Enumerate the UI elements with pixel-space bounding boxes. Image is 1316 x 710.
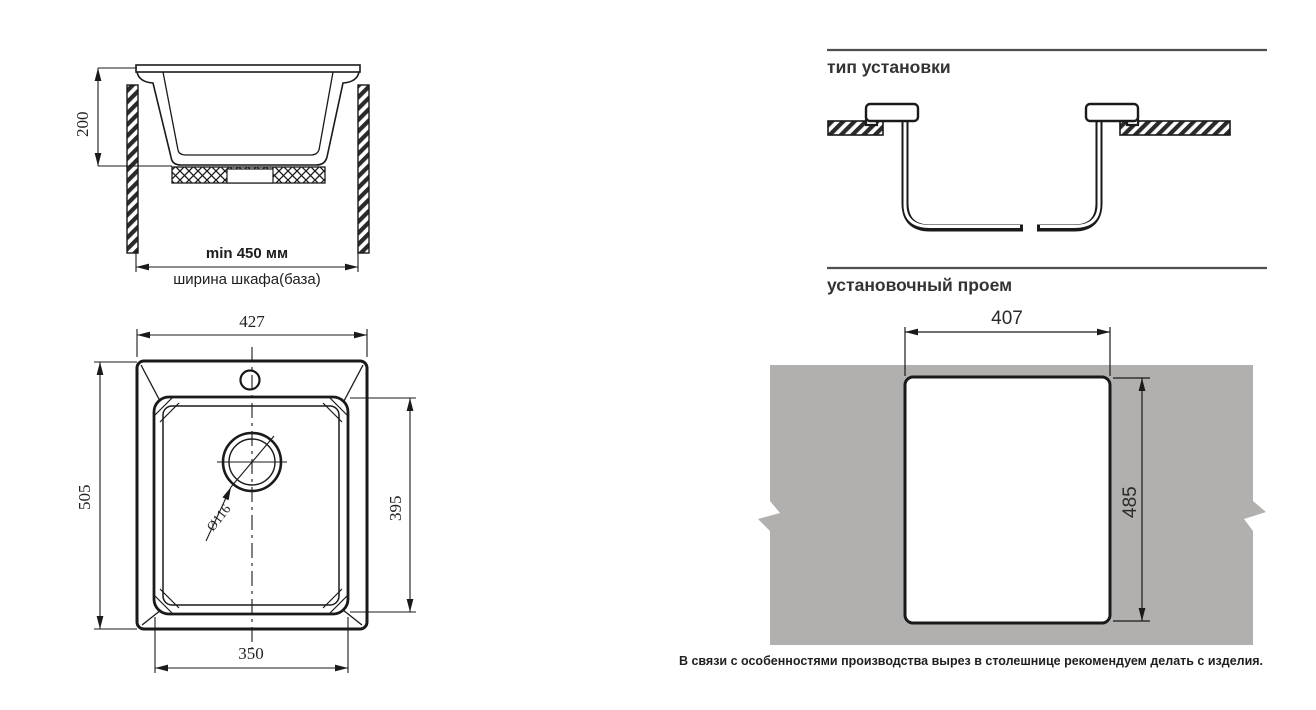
install-type-title: тип установки — [827, 57, 951, 77]
faucet-hole — [241, 371, 260, 390]
dim-label-485: 485 — [1120, 486, 1141, 518]
dim-label-drain: Ø116 — [204, 501, 234, 534]
top-view — [137, 347, 367, 648]
bowl-corner-chamfers — [154, 397, 348, 614]
dim-label-395: 395 — [386, 496, 405, 522]
diagram-canvas: 200 min 450 мм ширина шкафа(база) — [0, 0, 1316, 710]
dim-label-505: 505 — [75, 485, 94, 511]
cabinet-width-label: ширина шкафа(база) — [173, 271, 321, 288]
sink-flange-left — [866, 104, 918, 121]
dim-overall-depth — [94, 362, 137, 629]
cutout-opening — [905, 377, 1110, 623]
cabinet-wall-left — [127, 85, 138, 253]
dim-label-min450: min 450 мм — [206, 245, 288, 262]
cutout-drawing: 407 485 — [758, 308, 1266, 645]
dim-label-200: 200 — [73, 112, 92, 138]
sink-installation-diagram: 200 min 450 мм ширина шкафа(база) — [0, 0, 1316, 710]
bowl-rim-inner — [163, 406, 339, 605]
dim-label-427: 427 — [239, 312, 265, 331]
dim-label-350: 350 — [238, 644, 264, 663]
cutout-title: установочный проем — [827, 275, 1012, 295]
sink-rim-section — [136, 65, 360, 72]
bowl-rim-outer — [154, 397, 348, 614]
install-type-drawing — [828, 104, 1230, 228]
dim-bowl-depth — [350, 398, 416, 612]
drain-plate — [227, 169, 273, 183]
dim-label-407: 407 — [991, 308, 1023, 329]
cross-section-view — [127, 65, 369, 253]
sink-flange-right — [1086, 104, 1138, 121]
cabinet-wall-right — [358, 85, 369, 253]
footnote: В связи с особенностями производства выр… — [679, 654, 1263, 668]
